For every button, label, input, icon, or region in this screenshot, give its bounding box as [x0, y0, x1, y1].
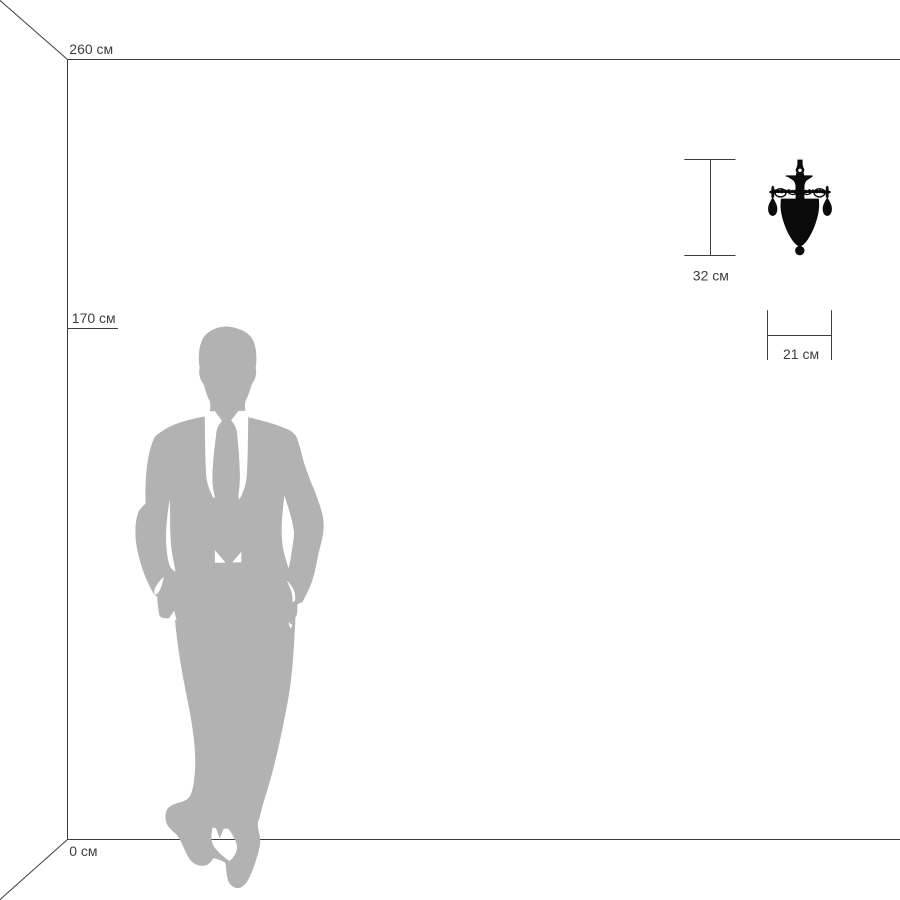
svg-text:260 см: 260 см — [69, 41, 113, 57]
svg-text:21 см: 21 см — [783, 346, 819, 362]
svg-text:170 см: 170 см — [72, 310, 116, 326]
svg-text:0 см: 0 см — [69, 843, 97, 859]
svg-text:32 см: 32 см — [693, 268, 729, 284]
